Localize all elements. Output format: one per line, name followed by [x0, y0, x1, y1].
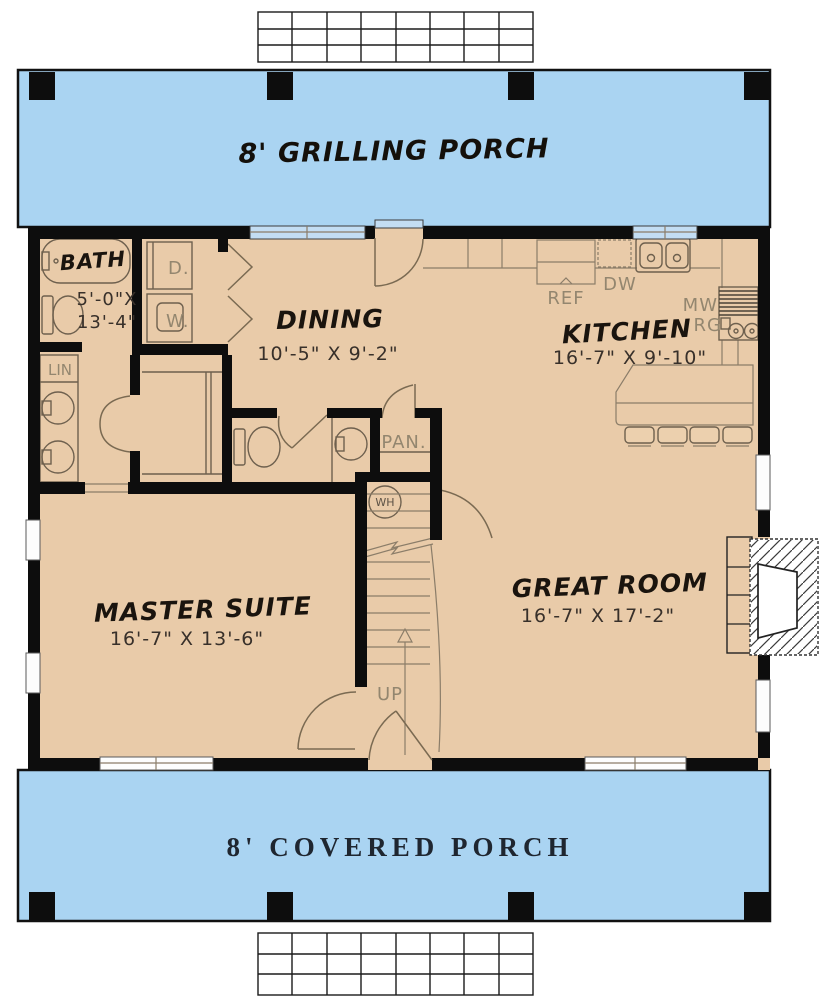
- fireplace: [727, 537, 818, 655]
- bath-label: BATH: [59, 247, 127, 276]
- porch-door-threshold: [375, 220, 423, 228]
- range-label: RG: [694, 315, 722, 336]
- water-heater-label: WH: [375, 496, 394, 509]
- grilling-porch-label: 8' GRILLING PORCH: [238, 133, 550, 169]
- bottom-steps: [258, 933, 533, 995]
- dishwasher-label: DW: [603, 274, 637, 295]
- porch-post: [267, 72, 293, 100]
- top-steps: [258, 12, 533, 62]
- floor-plan-drawing: 8' GRILLING PORCH 8' COVERED PORCH: [0, 0, 833, 999]
- porch-post: [744, 72, 770, 100]
- left-window: [26, 653, 40, 693]
- porch-post: [29, 72, 55, 100]
- master-east-wall: [355, 482, 367, 687]
- washer-label: W.: [166, 311, 189, 332]
- refrigerator-label: REF: [547, 288, 584, 309]
- linen-closet-label: LIN: [48, 361, 72, 379]
- porch-post: [508, 892, 534, 920]
- porch-post: [508, 72, 534, 100]
- up-label: UP: [377, 684, 403, 705]
- great-room-dims: 16'-7" X 17'-2": [521, 605, 675, 627]
- covered-porch-label: 8' COVERED PORCH: [226, 832, 573, 862]
- right-window: [756, 680, 770, 732]
- porch-post: [267, 892, 293, 920]
- bath-dims-2: 13'-4": [77, 312, 137, 333]
- floor-plan: 8' GRILLING PORCH 8' COVERED PORCH: [0, 0, 833, 999]
- firebox: [758, 564, 797, 638]
- dining-dims: 10'-5" X 9'-2": [257, 343, 398, 365]
- porch-post: [29, 892, 55, 920]
- dining-label: DINING: [276, 304, 384, 335]
- covered-porch: 8' COVERED PORCH: [18, 770, 770, 921]
- left-window: [26, 520, 40, 560]
- bath-south-wall: [40, 342, 82, 352]
- dryer-label: D.: [168, 258, 190, 279]
- bath-dims-1: 5'-0"X: [77, 289, 138, 310]
- pantry-label: PAN.: [381, 432, 426, 453]
- right-window: [756, 455, 770, 510]
- master-north-wall: [38, 482, 85, 494]
- kitchen-dims: 16'-7" X 9'-10": [553, 347, 707, 369]
- master-suite-dims: 16'-7" X 13'-6": [110, 628, 264, 650]
- porch-post: [744, 892, 770, 920]
- grilling-porch: 8' GRILLING PORCH: [18, 70, 770, 227]
